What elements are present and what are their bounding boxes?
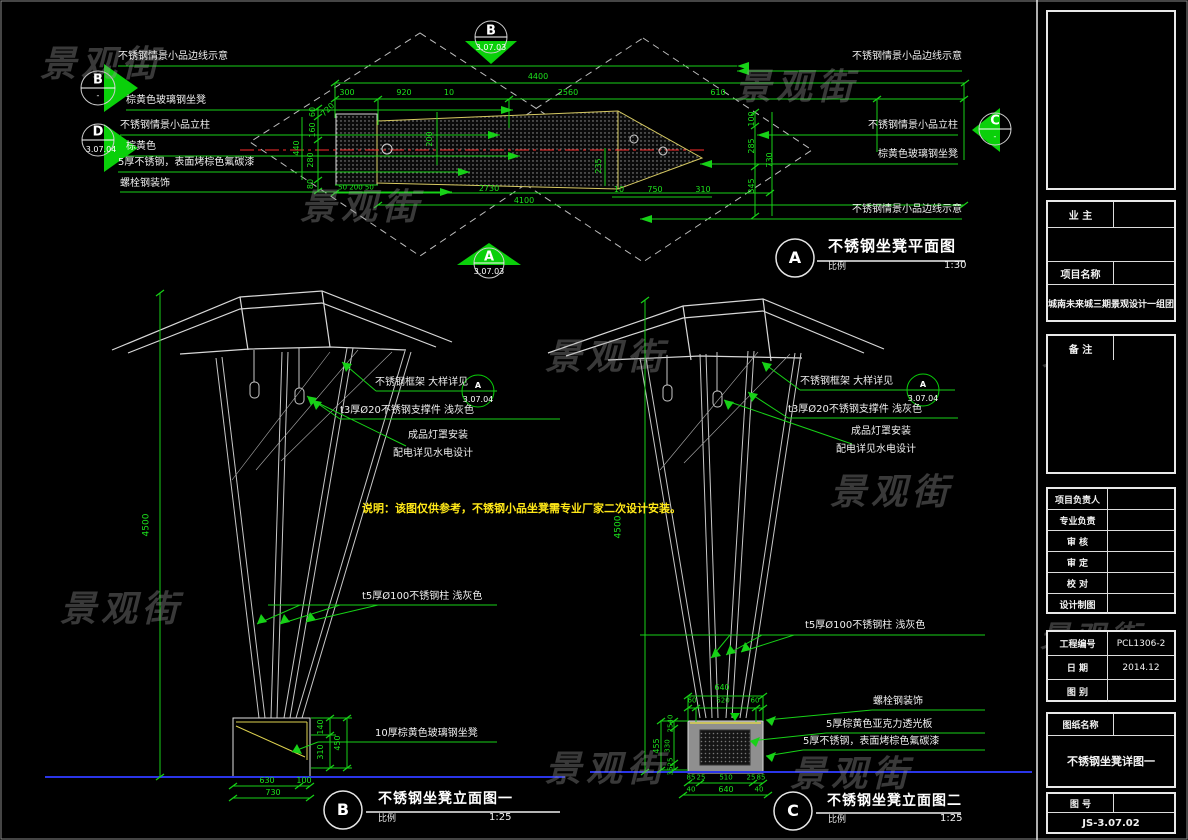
section-marker-letter: C <box>990 115 1000 128</box>
cad-sheet: 景观街 景观街 景观街 景观街 景观街 景观街 景观街 景观街 景观街 景观街 … <box>0 0 1188 840</box>
elev-c-dim: 35 <box>668 767 675 776</box>
elev-b-label-column: t5厚Ø100不锈钢柱 浅灰色 <box>362 592 482 602</box>
elev-c-dim: 40 <box>687 787 696 794</box>
title-block-no-box: 图 号 JS-3.07.02 <box>1046 792 1176 834</box>
plan-dim: 280 <box>307 152 315 167</box>
section-marker-letter: D <box>93 126 104 139</box>
elev-c-dim: 25 <box>668 758 675 767</box>
plan-label-seat-left: 棕黄色玻璃钢坐凳 <box>126 96 206 106</box>
staff-row-label: 专业负责 <box>1048 510 1108 530</box>
scale-label: 比例 <box>828 263 846 272</box>
plan-dim: 4100 <box>514 197 534 205</box>
drawing-no-label: 图 号 <box>1048 794 1114 812</box>
plan-dim: 750 <box>647 186 662 194</box>
plan-label-seat-right: 棕黄色玻璃钢坐凳 <box>878 150 958 160</box>
staff-row-label: 校 对 <box>1048 573 1108 593</box>
view-title-letter: B <box>337 802 349 818</box>
plan-dim: 2730 <box>479 185 499 193</box>
elev-b-dim: 630 <box>259 777 274 785</box>
date-label: 日 期 <box>1048 656 1108 679</box>
staff-row-label: 设计制图 <box>1048 594 1108 614</box>
staff-row-label: 审 核 <box>1048 531 1108 551</box>
elev-c-height-dim: 4500 <box>615 516 624 539</box>
detail-ref-letter: A <box>920 381 926 389</box>
elev-c-label-acrylic: 5厚棕黄色亚克力透光板 <box>826 720 932 730</box>
sheet-name-label: 图纸名称 <box>1048 714 1114 735</box>
elev-b-label-support: t3厚Ø20不锈钢支撑件 浅灰色 <box>340 406 474 416</box>
elev-c-dim: 455 <box>653 738 661 753</box>
plan-label-bolt: 螺栓钢装饰 <box>120 179 170 189</box>
detail-ref-number: 3.07.04 <box>908 395 939 403</box>
plan-dim: 610 <box>710 89 725 97</box>
plan-dim: 10 <box>614 186 624 194</box>
eng-no-label: 工程编号 <box>1048 632 1108 655</box>
elev-c-dim: 25 <box>747 775 756 782</box>
elev-c-dim: 640 <box>718 786 733 794</box>
title-block-staff-box: 项目负责人 专业负责 审 核 审 定 校 对 设计制图 <box>1046 487 1176 614</box>
scale-value: 1:25 <box>940 814 962 824</box>
elev-c-dim: 60 <box>688 698 697 705</box>
elev-c-dim: 330 <box>665 739 672 752</box>
title-block-number-box: 工程编号 PCL1306-2 日 期 2014.12 图 别 <box>1046 630 1176 702</box>
section-marker-letter: B <box>486 25 496 38</box>
elev-c-dim: 85 <box>757 775 766 782</box>
elev-b-dim: 310 <box>317 744 325 759</box>
elev-b-label-frame: 不锈钢框架 大样详见 <box>375 378 468 388</box>
scale-label: 比例 <box>378 815 396 824</box>
plan-dim: 2560 <box>558 89 578 97</box>
plan-dim: 730 <box>766 152 774 167</box>
staff-row-label: 审 定 <box>1048 552 1108 572</box>
elev-b-label-lamp: 成品灯罩安装 <box>408 431 468 441</box>
plan-dim: 920 <box>396 89 411 97</box>
plan-dim: 10 <box>444 89 454 97</box>
detail-ref-number: 3.07.04 <box>463 396 494 404</box>
elev-c-dim: 60 <box>751 698 760 705</box>
date-value: 2014.12 <box>1108 663 1174 673</box>
scale-value: 1:25 <box>489 813 511 823</box>
view-title: 不锈钢坐凳立面图二 <box>827 794 962 808</box>
plan-label-column-left: 不锈钢情景小品立柱 <box>120 121 210 131</box>
plan-dim: 50 200 50 <box>338 185 374 192</box>
elev-c-dim: 640 <box>714 684 729 692</box>
elev-b-height-dim: 4500 <box>143 514 152 537</box>
elev-c-dim: 520 <box>716 698 729 705</box>
title-block-project-box: 业 主 项目名称 城南未来城三期景观设计一组团 <box>1046 200 1176 322</box>
plan-dim: 80 <box>307 179 315 189</box>
elev-c-dim: 85 <box>687 775 696 782</box>
elev-b-dim: 100 <box>296 777 311 785</box>
view-title-letter: A <box>789 250 801 266</box>
plan-dim: 60 <box>309 107 317 117</box>
scale-label: 比例 <box>828 816 846 825</box>
elev-c-label-lamp: 成品灯罩安装 <box>851 427 911 437</box>
section-marker-ref: - <box>994 133 997 141</box>
elev-c-label-support: t3厚Ø20不锈钢支撑件 浅灰色 <box>788 405 922 415</box>
view-title: 不锈钢坐凳平面图 <box>828 239 956 254</box>
elev-c-dim: 25 <box>697 775 706 782</box>
elev-b-label-power: 配电详见水电设计 <box>393 449 473 459</box>
elev-c-label-frame: 不锈钢框架 大样详见 <box>800 377 893 387</box>
elev-c-label-steel: 5厚不锈钢，表面烤棕色氟碳漆 <box>803 737 939 747</box>
elev-b-dim: 140 <box>317 719 325 734</box>
title-block-remark-box: 备 注 <box>1046 334 1176 474</box>
view-title: 不锈钢坐凳立面图一 <box>378 792 513 806</box>
elev-c-label-column: t5厚Ø100不锈钢柱 浅灰色 <box>805 621 925 631</box>
section-marker-ref: - <box>97 92 100 100</box>
plan-dim: 235 <box>595 158 603 173</box>
section-marker-letter: B <box>93 74 103 87</box>
plan-label-edge-left: 不锈钢情景小品边线示意 <box>118 52 228 62</box>
plan-dim: 100 <box>748 111 756 126</box>
plan-dim: 300 <box>339 89 354 97</box>
sheet-name: 不锈钢坐凳详图一 <box>1048 736 1174 786</box>
plan-label-column-right: 不锈钢情景小品立柱 <box>868 121 958 131</box>
plan-dim: 310 <box>695 186 710 194</box>
section-marker-ref: 3.07.04 <box>86 146 117 154</box>
plan-label-steel: 5厚不锈钢，表面烤棕色氟碳漆 <box>118 158 254 168</box>
elev-b-dim: 450 <box>334 735 342 750</box>
drawing-no: JS-3.07.02 <box>1048 813 1174 833</box>
section-marker-ref: 3.07.03 <box>474 268 505 276</box>
reference-note: 说明：该图仅供参考，不锈钢小品坐凳需专业厂家二次设计安装。 <box>362 503 681 514</box>
elev-c-dim: 40 <box>755 787 764 794</box>
remark-label: 备 注 <box>1048 336 1114 360</box>
plan-dim: 345 <box>748 178 756 193</box>
eng-no-value: PCL1306-2 <box>1108 639 1174 649</box>
detail-ref-letter: A <box>475 382 481 390</box>
elev-b-label-seat: 10厚棕黄色玻璃钢坐凳 <box>375 729 478 739</box>
owner-label: 业 主 <box>1048 202 1114 227</box>
plan-dim: 285 <box>748 138 756 153</box>
section-marker-ref: 3.07.03 <box>476 44 507 52</box>
title-block-logo-box <box>1046 10 1176 190</box>
plan-dim: 440 <box>293 140 301 155</box>
scale-value: 1:30 <box>944 261 966 271</box>
plan-label-edge-right-top: 不锈钢情景小品边线示意 <box>852 52 962 62</box>
view-title-letter: C <box>787 803 799 819</box>
project-label: 项目名称 <box>1048 262 1114 284</box>
plan-dim: 200 <box>426 131 434 146</box>
elev-c-label-power: 配电详见水电设计 <box>836 445 916 455</box>
staff-row-label: 项目负责人 <box>1048 489 1108 509</box>
elev-c-label-bolt: 螺栓钢装饰 <box>873 697 923 707</box>
section-marker-letter: A <box>484 251 494 264</box>
plan-label-color: 棕黄色 <box>126 142 156 152</box>
elev-c-dim: 25 <box>668 724 675 733</box>
plan-dim-total: 4400 <box>528 73 548 81</box>
title-block-sheet-box: 图纸名称 不锈钢坐凳详图一 <box>1046 712 1176 788</box>
elev-b-dim: 730 <box>265 789 280 797</box>
elev-c-dim: 40 <box>668 715 675 724</box>
project-name: 城南未来城三期景观设计一组团 <box>1048 285 1174 321</box>
elev-c-dim: 510 <box>719 775 732 782</box>
plan-dim: 160 <box>309 122 317 137</box>
plan-label-edge-right-bottom: 不锈钢情景小品边线示意 <box>852 205 962 215</box>
type-label: 图 别 <box>1048 680 1108 702</box>
